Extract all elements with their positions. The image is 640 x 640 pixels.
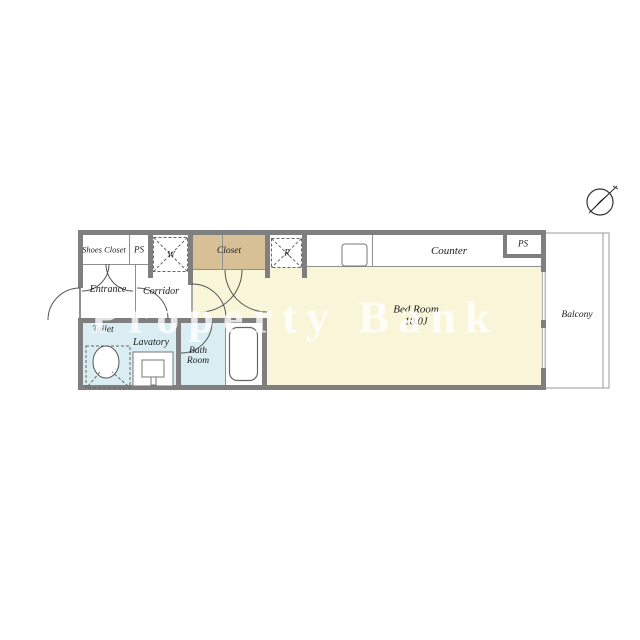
wall-left-upper [78, 235, 83, 288]
wall-closet-fridge [265, 235, 270, 278]
compass-needle [589, 190, 613, 213]
front-door-arc [48, 288, 80, 320]
watermark-text: Property Bank [91, 291, 500, 344]
line-counter-divider [372, 235, 373, 266]
label-bath-room: Bath Room [187, 347, 209, 367]
line-front-door-leaf [79, 288, 81, 318]
line-band-bottom [83, 264, 148, 265]
line-shoes-ps-divider [129, 235, 130, 264]
window-upper [542, 272, 545, 320]
line-counter-bottom [307, 266, 541, 267]
wall-right-seg2 [541, 320, 546, 328]
floor-plan-canvas: Shoes Closet PS W Closet R Counter PS En… [0, 0, 640, 640]
label-closet: Closet [217, 247, 241, 257]
label-refrigerator: R [284, 248, 290, 257]
window-lower [542, 328, 545, 368]
label-balcony: Balcony [561, 311, 592, 321]
label-shoes-closet: Shoes Closet [82, 246, 126, 255]
label-washer: W [167, 250, 175, 259]
wall-fridge-counter [302, 235, 307, 278]
floor-plan-page: { "watermark": "Property Bank", "icons":… [0, 0, 640, 640]
line-closet-bottom [193, 269, 265, 270]
label-ps-left: PS [134, 245, 144, 254]
label-bath-line2: Room [187, 357, 209, 367]
compass-axis [589, 186, 617, 213]
label-counter: Counter [431, 246, 467, 258]
label-ps-right: PS [518, 239, 528, 248]
north-arrow-icon [587, 186, 618, 215]
wall-washer-closet [188, 235, 193, 285]
wall-ps-washer [148, 235, 153, 278]
compass-circle [587, 189, 613, 215]
wall-right-seg3 [541, 368, 546, 385]
wall-ps-right-bottom [503, 254, 545, 258]
wall-bottom [78, 385, 546, 390]
wall-left-lower [78, 318, 83, 390]
compass-tick [613, 186, 618, 189]
